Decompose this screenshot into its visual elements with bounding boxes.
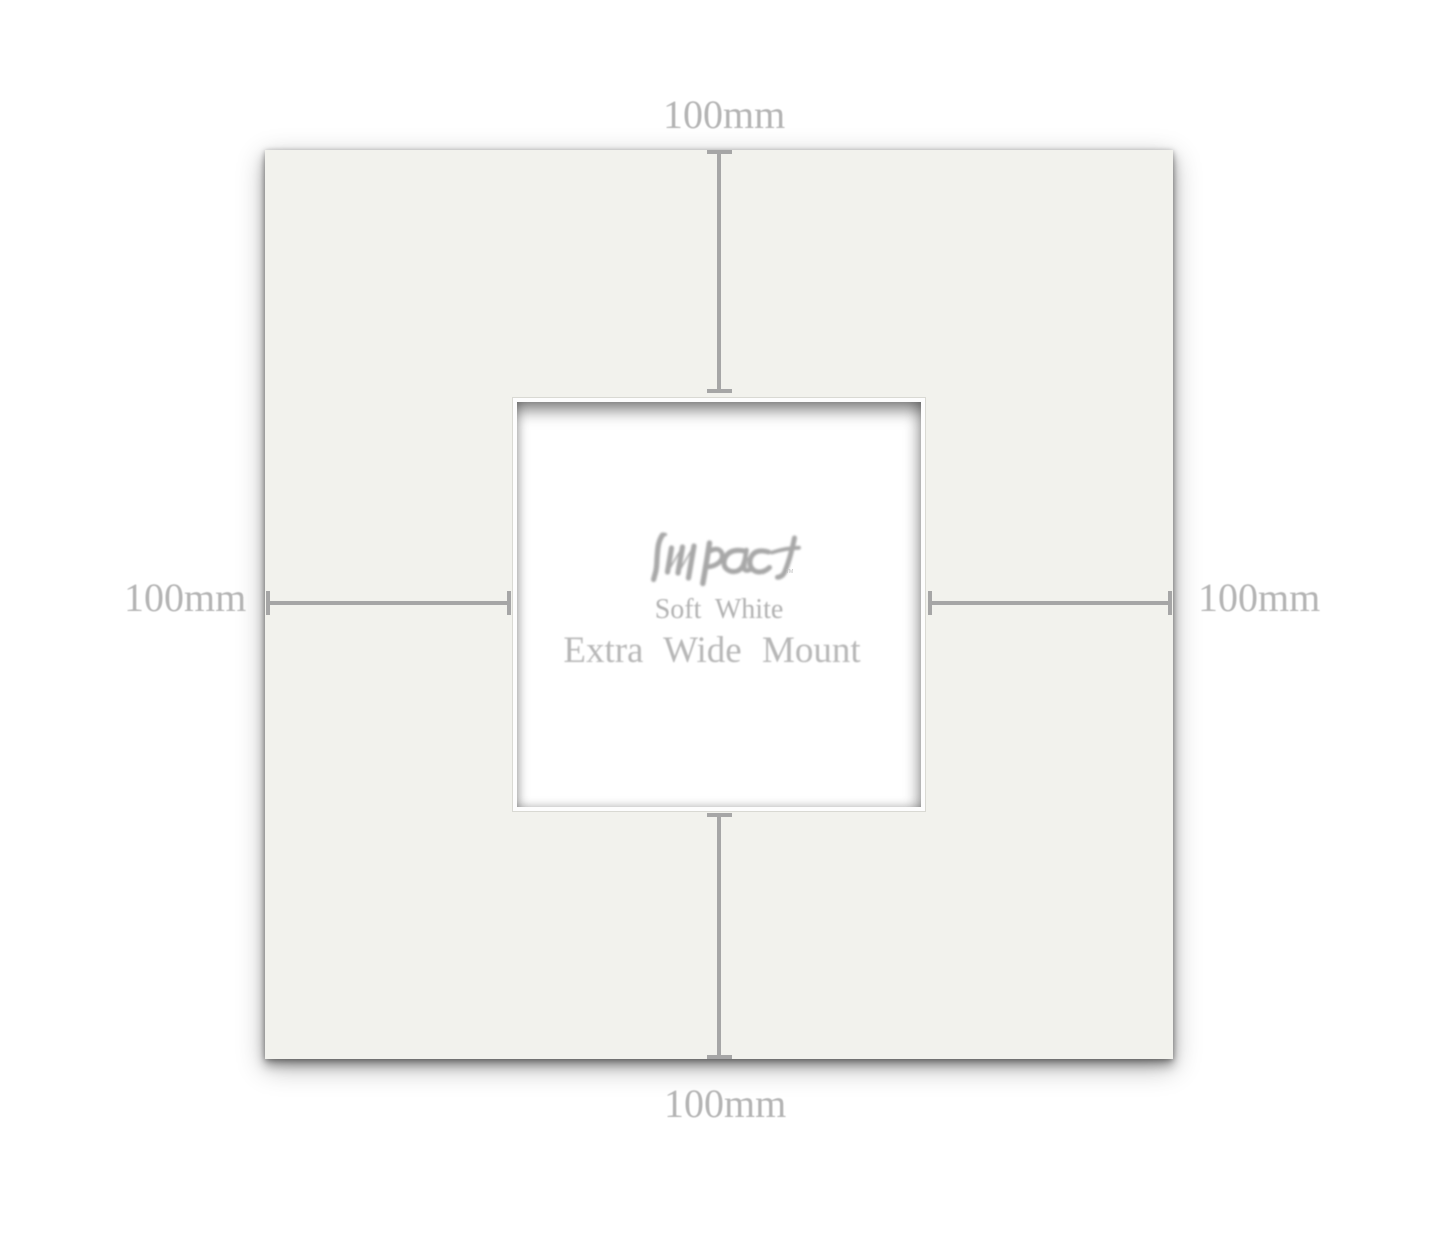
svg-text:TM: TM	[786, 569, 793, 575]
